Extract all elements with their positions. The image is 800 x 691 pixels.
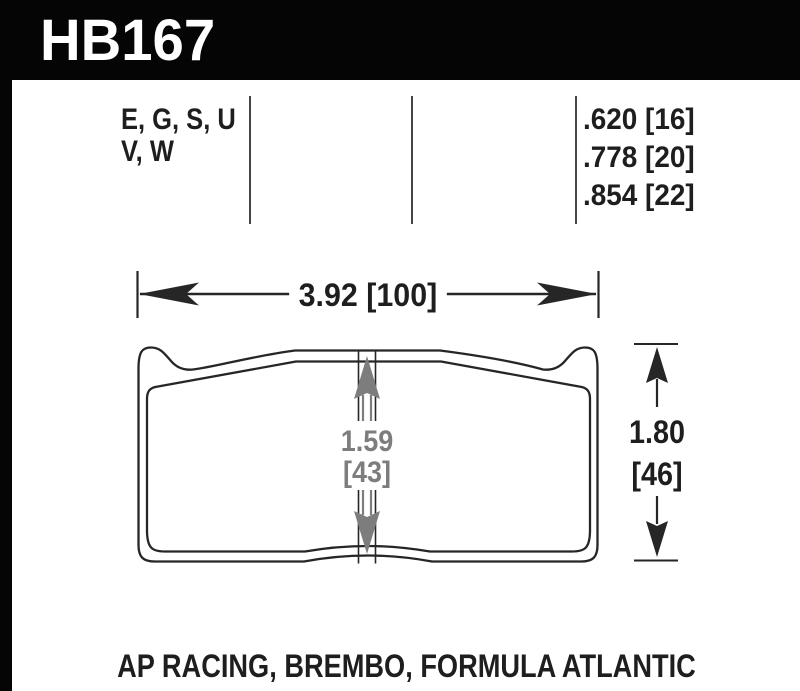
height-dimension-mm: [46] [603, 453, 711, 495]
height-dimension-inches: 1.80 [603, 411, 711, 453]
spec-sheet: HB167 E, G, S, U V, W .620 [16] .778 [20… [0, 0, 800, 691]
center-dimension-label: 1.59 [43] [313, 426, 421, 488]
pad-drawing [0, 0, 800, 691]
applications-line: AP RACING, BREMBO, FORMULA ATLANTIC [12, 648, 800, 685]
center-dimension-mm: [43] [313, 457, 421, 488]
width-dimension-label: 3.92 [100] [168, 277, 568, 314]
center-dimension-inches: 1.59 [313, 426, 421, 457]
height-dimension-label: 1.80 [46] [603, 411, 711, 495]
